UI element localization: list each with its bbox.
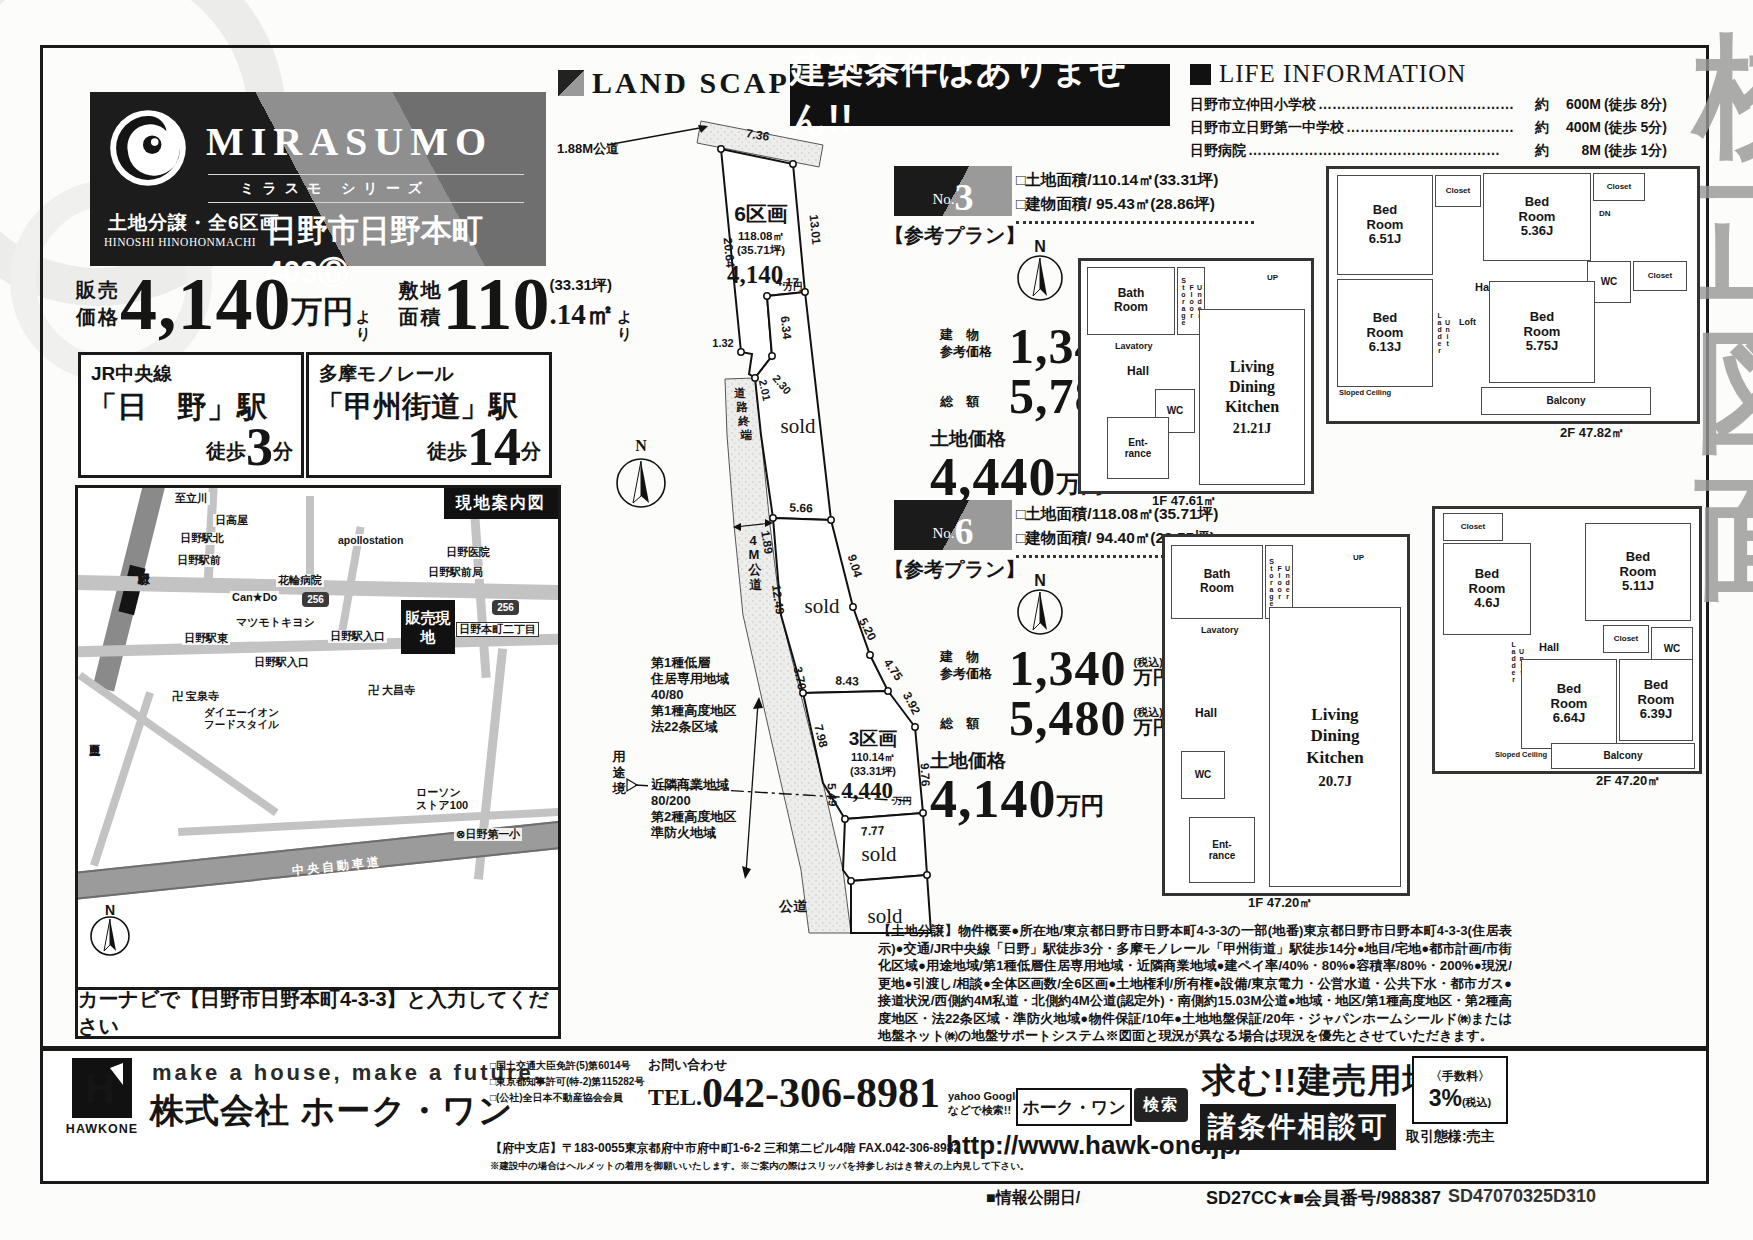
brand-name: MIRASUMO: [206, 118, 493, 165]
life-info-item: 日野市立仲田小学校……………………………………約600M(徒歩 8分): [1190, 96, 1692, 114]
svg-text:110.14㎡: 110.14㎡: [851, 751, 895, 763]
life-info-item: 日野病院………………………………………………約8M(徒歩 1分): [1190, 142, 1692, 160]
brand-block: MIRASUMO ミラスモ シリーズ 土地分譲・全6区画 HINOSHI HIN…: [90, 92, 546, 266]
map-compass-icon: N: [88, 902, 132, 964]
price-label: 販売 価格: [76, 277, 120, 337]
map-label: 花輪病院: [276, 574, 324, 587]
map-title-tab: 現地案内図: [444, 488, 558, 519]
member-number: SD27CC★■会員番号/988387: [1206, 1186, 1441, 1210]
map-label: 日野駅前: [175, 554, 223, 567]
svg-text:40/80: 40/80: [651, 687, 684, 702]
map-label: マツモトキヨシ: [234, 616, 317, 629]
area-label: 敷地 面積: [399, 277, 443, 337]
svg-text:H: H: [85, 1065, 115, 1112]
map-label: 日野駅北: [178, 532, 226, 545]
plan6-1f-floorplan: Bath Room Under Floor Storage UP Lavator…: [1162, 534, 1410, 896]
svg-text:公道: 公道: [778, 898, 808, 914]
access-line: 多摩モノレール: [319, 361, 454, 387]
plan3-1f-floorplan: Bath Room Under Floor Storage UP Lavator…: [1078, 258, 1314, 494]
footer-company: 株式会社 ホーク・ワン: [150, 1088, 514, 1134]
plan6-compass-icon: N: [1014, 572, 1066, 642]
svg-text:公: 公: [748, 562, 763, 577]
svg-text:1.88M公道: 1.88M公道: [557, 141, 619, 156]
map-label: 卍 宝泉寺: [170, 690, 221, 703]
plan6-2f-floorplan: Closet Bed Room 4.6J Bed Room 5.11J Hall…: [1432, 506, 1702, 774]
plan3-ref-label: 【参考プラン】: [884, 222, 1025, 249]
price-value: 4,140: [120, 272, 292, 337]
access-walk: 徒歩 3 分: [206, 425, 293, 471]
route-256-badge: 256: [302, 592, 329, 607]
brand-rule: [208, 202, 524, 203]
map-label: 日野駅入口: [328, 630, 387, 643]
brand-series: ミラスモ シリーズ: [240, 180, 430, 198]
svg-text:sold: sold: [861, 842, 897, 866]
svg-text:sold: sold: [780, 414, 816, 438]
plan6-prices: 建 物 参考価格 1,340 (税込)万円 総 額 5,480 (税込)万円 土…: [940, 646, 1172, 824]
svg-text:M: M: [749, 547, 760, 562]
price-area-row: 販売 価格 4,140 万円 より 敷地 面積 110 (33.31坪) .14…: [76, 272, 634, 337]
svg-text:第1種高度地区: 第1種高度地区: [650, 703, 736, 718]
map-label: 至立川: [173, 492, 210, 505]
document-code: SD47070325D310: [1448, 1186, 1596, 1207]
map-label: 日野医院: [444, 546, 492, 559]
footer-branch: 【府中支店】〒183-0055東京都府中市府中町1-6-2 三和第二ビル4階 F…: [490, 1140, 960, 1157]
plan6-badge: No. 6: [894, 500, 1012, 550]
svg-text:sold: sold: [804, 594, 840, 618]
transaction-type: 取引態様:売主: [1406, 1128, 1495, 1146]
plan3-compass-icon: N: [1014, 238, 1066, 308]
map-label: 日野駅東: [182, 632, 230, 645]
publication-date: ■情報公開日/: [986, 1188, 1080, 1209]
map-road: [90, 691, 154, 867]
access-box-jr: JR中央線 「日 野」駅 徒歩 3 分: [78, 352, 304, 478]
svg-text:境: 境: [612, 781, 627, 796]
svg-text:N: N: [1034, 238, 1046, 255]
map-caption-box: カーナビで【日野市日野本町4-3-3】と入力してください: [75, 987, 561, 1039]
svg-text:準防火地域: 準防火地域: [650, 825, 717, 840]
svg-text:13.01: 13.01: [806, 214, 823, 246]
access-walk: 徒歩 14 分: [427, 425, 541, 471]
svg-text:(33.31坪): (33.31坪): [850, 765, 896, 777]
svg-text:道: 道: [733, 387, 746, 399]
site-marker: 販売現地: [401, 600, 455, 654]
svg-text:5.66: 5.66: [789, 501, 813, 516]
plan6-2f-caption: 2F 47.20㎡: [1596, 772, 1660, 790]
proof-watermark: 校 正 図 面: [1694, 22, 1753, 613]
svg-text:6.34: 6.34: [778, 315, 794, 340]
svg-text:終: 終: [737, 415, 750, 427]
plan3-badge: No. 3: [894, 166, 1012, 216]
map-caption: カーナビで【日野市日野本町4-3-3】と入力してください: [78, 986, 558, 1040]
svg-text:第2種高度地区: 第2種高度地区: [650, 809, 736, 824]
svg-text:道: 道: [749, 577, 763, 592]
svg-text:路: 路: [735, 401, 748, 413]
svg-text:万円: 万円: [782, 281, 803, 292]
mirasumo-logo-icon: [106, 106, 190, 194]
map-label: apollostation: [336, 534, 405, 546]
fee-box: 〈手数料〉 3%(税込): [1412, 1056, 1508, 1124]
brand-rule: [208, 174, 524, 175]
footer-note: ※建設中の場合はヘルメットの着用を御願いいたします。※ご案内の際はスリッパを持参…: [490, 1160, 1029, 1173]
svg-text:80/200: 80/200: [651, 793, 691, 808]
map-label: 日野駅入口: [252, 656, 311, 669]
svg-text:4,140: 4,140: [727, 261, 783, 288]
plan3-2f-caption: 2F 47.82㎡: [1560, 424, 1624, 442]
svg-text:法22条区域: 法22条区域: [651, 719, 718, 734]
svg-text:途: 途: [613, 765, 627, 780]
svg-text:9.04: 9.04: [845, 552, 866, 579]
no-building-conditions-banner: 建築条件はありません!!: [790, 64, 1170, 126]
map-label: ダイエーイオン フードスタイル: [202, 706, 281, 730]
map-label: ローソン ストア100: [414, 786, 470, 811]
plan3-2f-floorplan: Bed Room 6.51J Closet Bed Room 5.36J Clo…: [1326, 166, 1700, 424]
land-compass-icon: N: [617, 437, 665, 507]
sale-type: 土地分譲・全6区画: [108, 210, 280, 236]
svg-text:(35.71坪): (35.71坪): [737, 244, 785, 256]
svg-text:118.08㎡: 118.08㎡: [738, 230, 784, 242]
svg-text:端: 端: [739, 429, 752, 441]
hawkone-logo: H: [72, 1058, 132, 1122]
plan3-areas: □土地面積/110.14㎡(33.31坪) □建物面積/ 95.43㎡(28.8…: [1016, 168, 1254, 224]
footer-licenses: □国土交通大臣免許(5)第6014号 □東京都知事許可(特-2)第115282号…: [490, 1058, 644, 1106]
svg-text:3区画: 3区画: [849, 728, 898, 749]
price-unit: 万円: [292, 291, 354, 337]
search-term-box: ホーク・ワン: [1016, 1088, 1132, 1126]
svg-text:第1種低層: 第1種低層: [650, 655, 710, 670]
footer-url: http://www.hawk-one.jp/: [946, 1130, 1243, 1161]
map-label: 日高屋: [213, 514, 250, 527]
access-station: 「日 野」駅: [87, 387, 267, 428]
route-256-badge: 256: [492, 600, 519, 615]
search-hint: yahoo Google などで検索!!: [948, 1090, 1021, 1118]
map-label: ⊗日野第一小: [454, 828, 522, 841]
svg-text:7.77: 7.77: [861, 823, 886, 839]
map-label: Can★Do: [230, 591, 279, 604]
access-box-monorail: 多摩モノレール 「甲州街道」駅 徒歩 14 分: [306, 352, 552, 478]
sale-romaji: HINOSHI HINOHONMACHI: [104, 236, 256, 248]
hawkone-logo-text: HAWKONE: [58, 1122, 146, 1136]
price-suffix: より: [354, 299, 373, 337]
svg-text:8.43: 8.43: [835, 674, 859, 689]
landscape-title-icon: [558, 70, 584, 96]
map-label: 日野駅前局: [426, 566, 485, 579]
svg-text:5.49: 5.49: [825, 783, 840, 807]
svg-text:6区画: 6区画: [734, 202, 788, 225]
plan6-ref-label: 【参考プラン】: [884, 556, 1025, 583]
search-button: 検索: [1134, 1088, 1188, 1122]
life-info-square-icon: [1190, 64, 1211, 85]
plan6-1f-caption: 1F 47.20㎡: [1248, 894, 1312, 912]
life-information: LIFE INFORMATION 日野市立仲田小学校………………………………………: [1190, 60, 1695, 165]
life-info-title: LIFE INFORMATION: [1219, 60, 1466, 88]
footer-tagline: make a house, make a future.: [152, 1060, 543, 1086]
property-overview: 【土地分譲】物件概要●所在地/東京都日野市日野本町4-3-3の一部(地番)東京都…: [878, 922, 1512, 1045]
svg-text:N: N: [105, 902, 115, 918]
area-value: 110: [443, 272, 550, 337]
svg-text:1.32: 1.32: [712, 337, 733, 349]
map-label: 卍 大昌寺: [366, 684, 417, 697]
life-info-item: 日野市立日野第一中学校………………………………約400M(徒歩 5分): [1190, 119, 1692, 137]
area-map: 至立川 日高屋 日野駅北 日野駅前 apollostation 日野医院 花輪病…: [75, 485, 561, 991]
svg-text:N: N: [635, 437, 647, 454]
negotiable-box: 諸条件相談可: [1200, 1104, 1396, 1150]
svg-text:4.75: 4.75: [881, 656, 906, 683]
svg-text:用: 用: [612, 749, 626, 764]
footer-contact: お問い合わせ TEL. 042-306-8981: [648, 1056, 940, 1114]
svg-text:住居専用地域: 住居専用地域: [650, 671, 730, 686]
svg-text:N: N: [1034, 572, 1046, 589]
wanted-land-text: 求む!!建売用地: [1202, 1058, 1437, 1104]
map-label: 日野本町二丁目: [456, 622, 539, 637]
svg-text:4: 4: [749, 533, 757, 548]
access-line: JR中央線: [91, 361, 172, 387]
